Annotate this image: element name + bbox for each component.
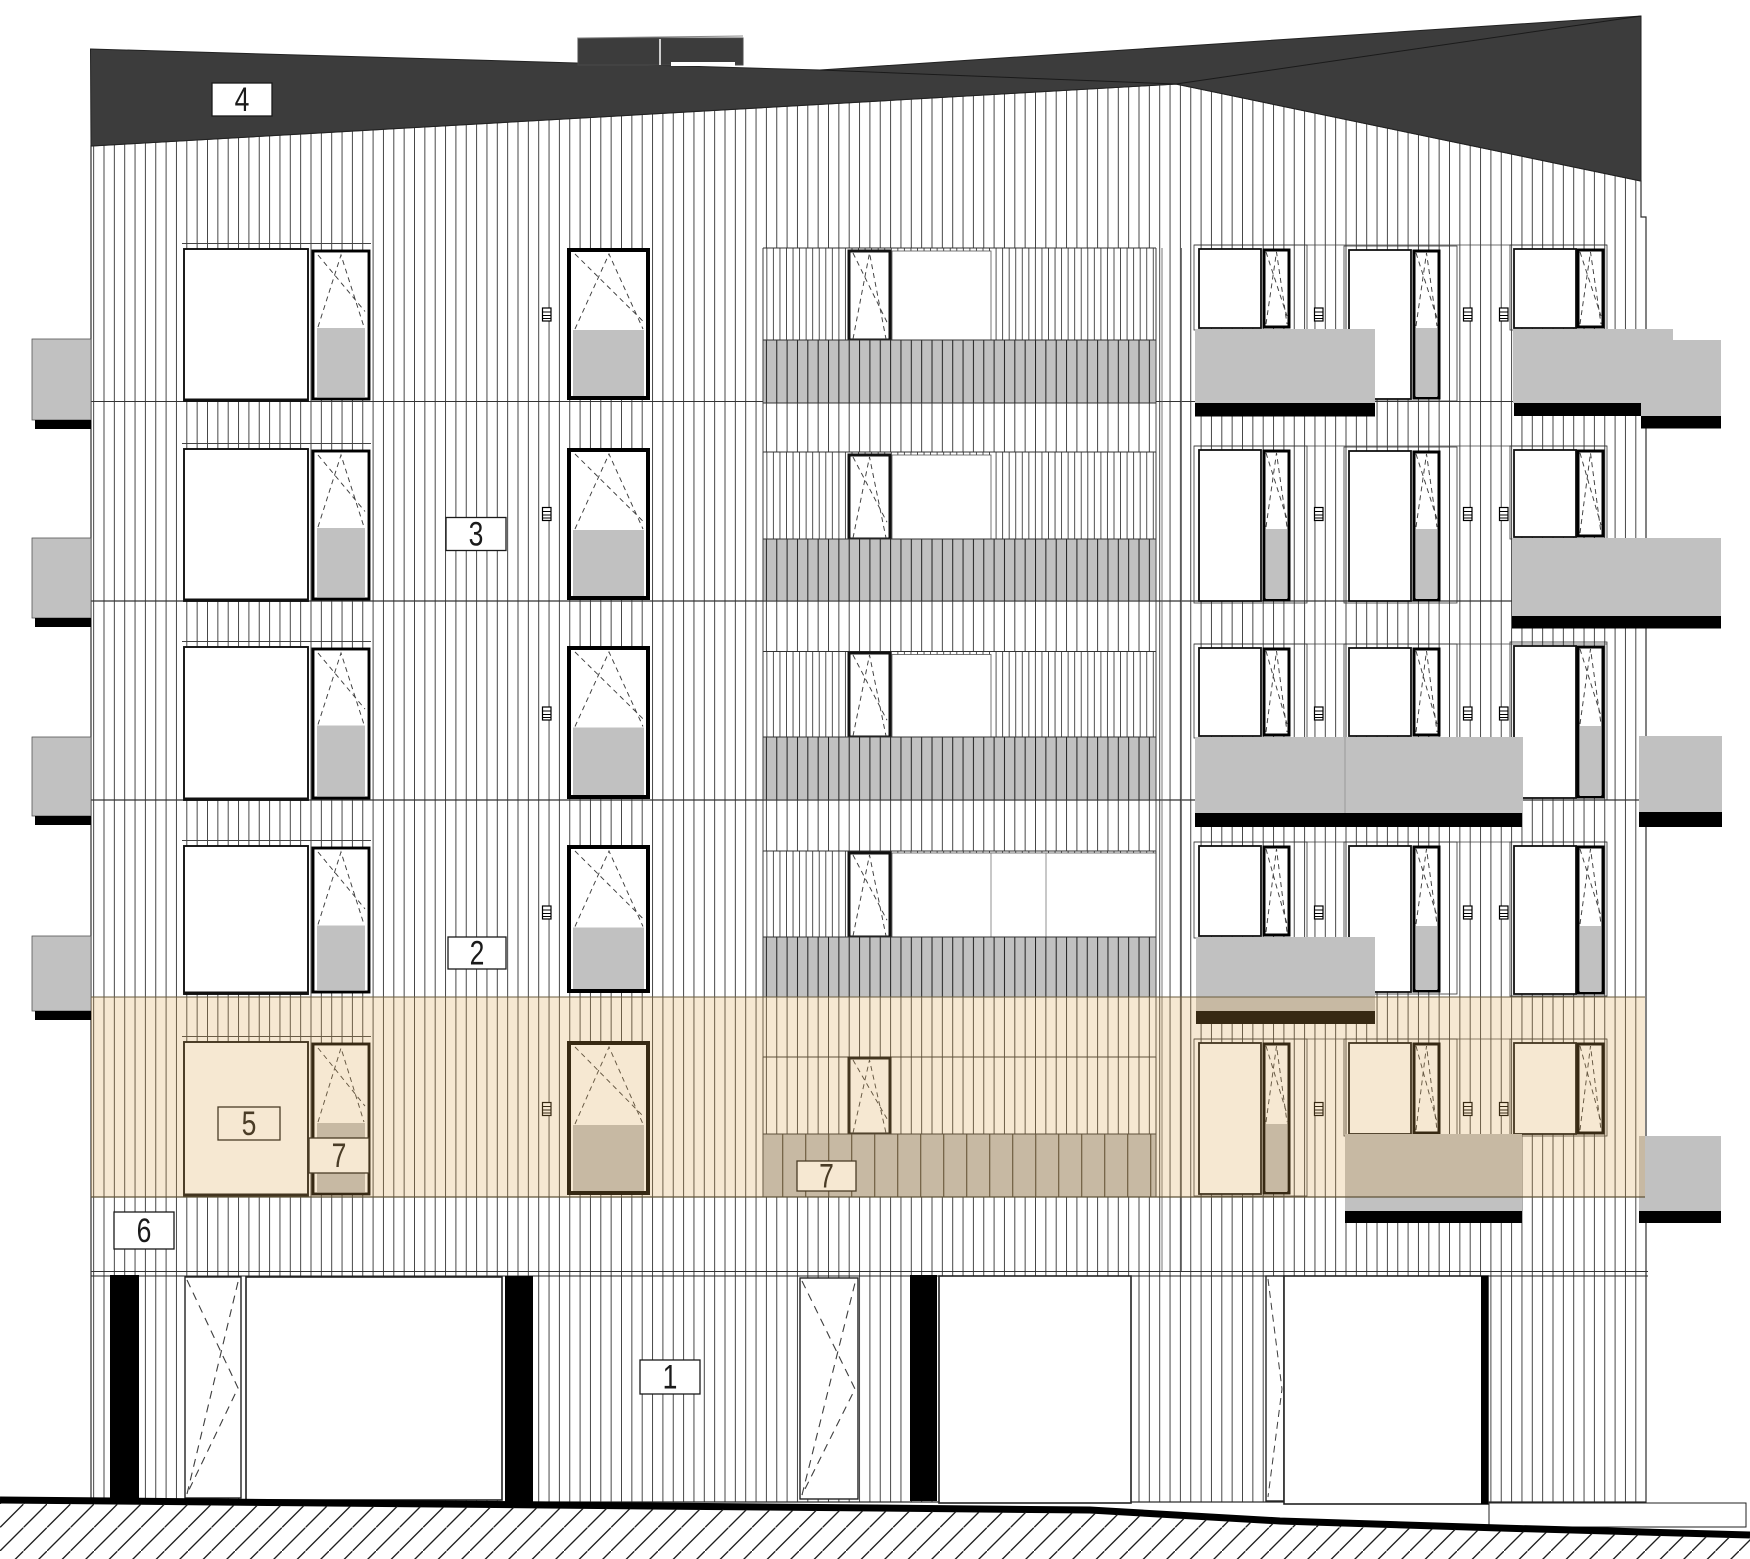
svg-text:1: 1 [663,1358,678,1396]
svg-text:3: 3 [469,515,484,553]
svg-text:2: 2 [470,934,485,972]
svg-text:6: 6 [137,1212,152,1250]
svg-text:4: 4 [235,81,250,119]
